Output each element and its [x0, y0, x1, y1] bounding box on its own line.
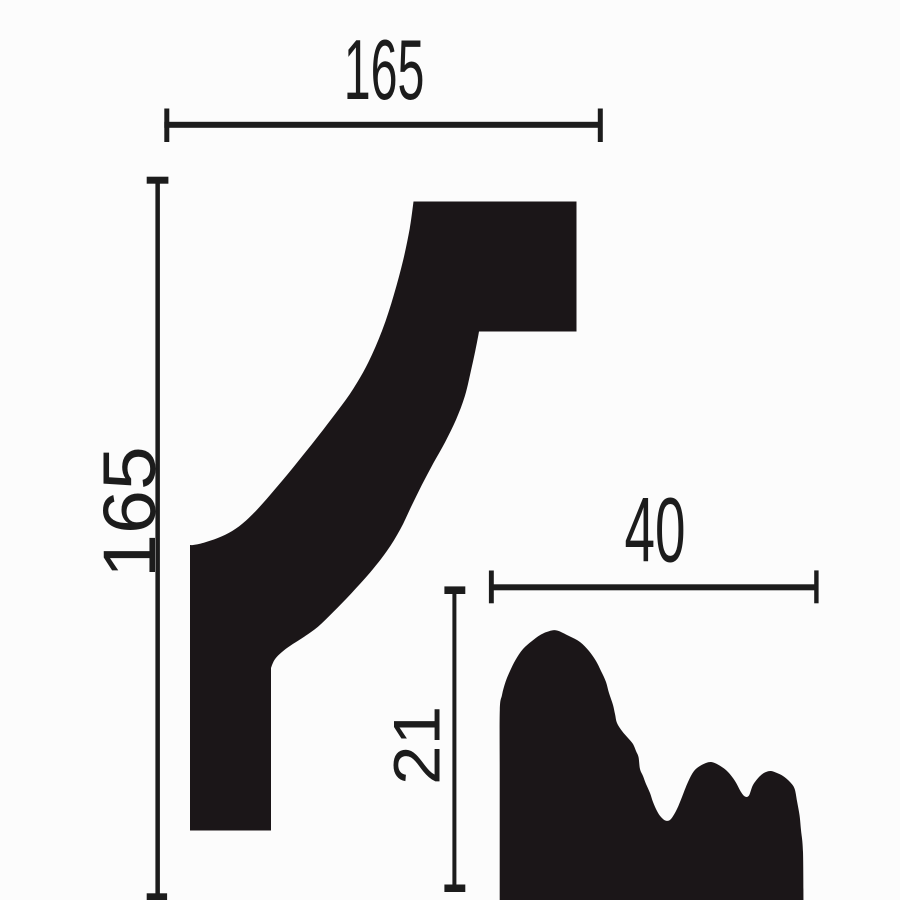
svg-text:40: 40	[625, 477, 686, 581]
svg-text:21: 21	[380, 706, 453, 785]
svg-text:165: 165	[344, 23, 425, 118]
svg-text:165: 165	[88, 446, 171, 578]
